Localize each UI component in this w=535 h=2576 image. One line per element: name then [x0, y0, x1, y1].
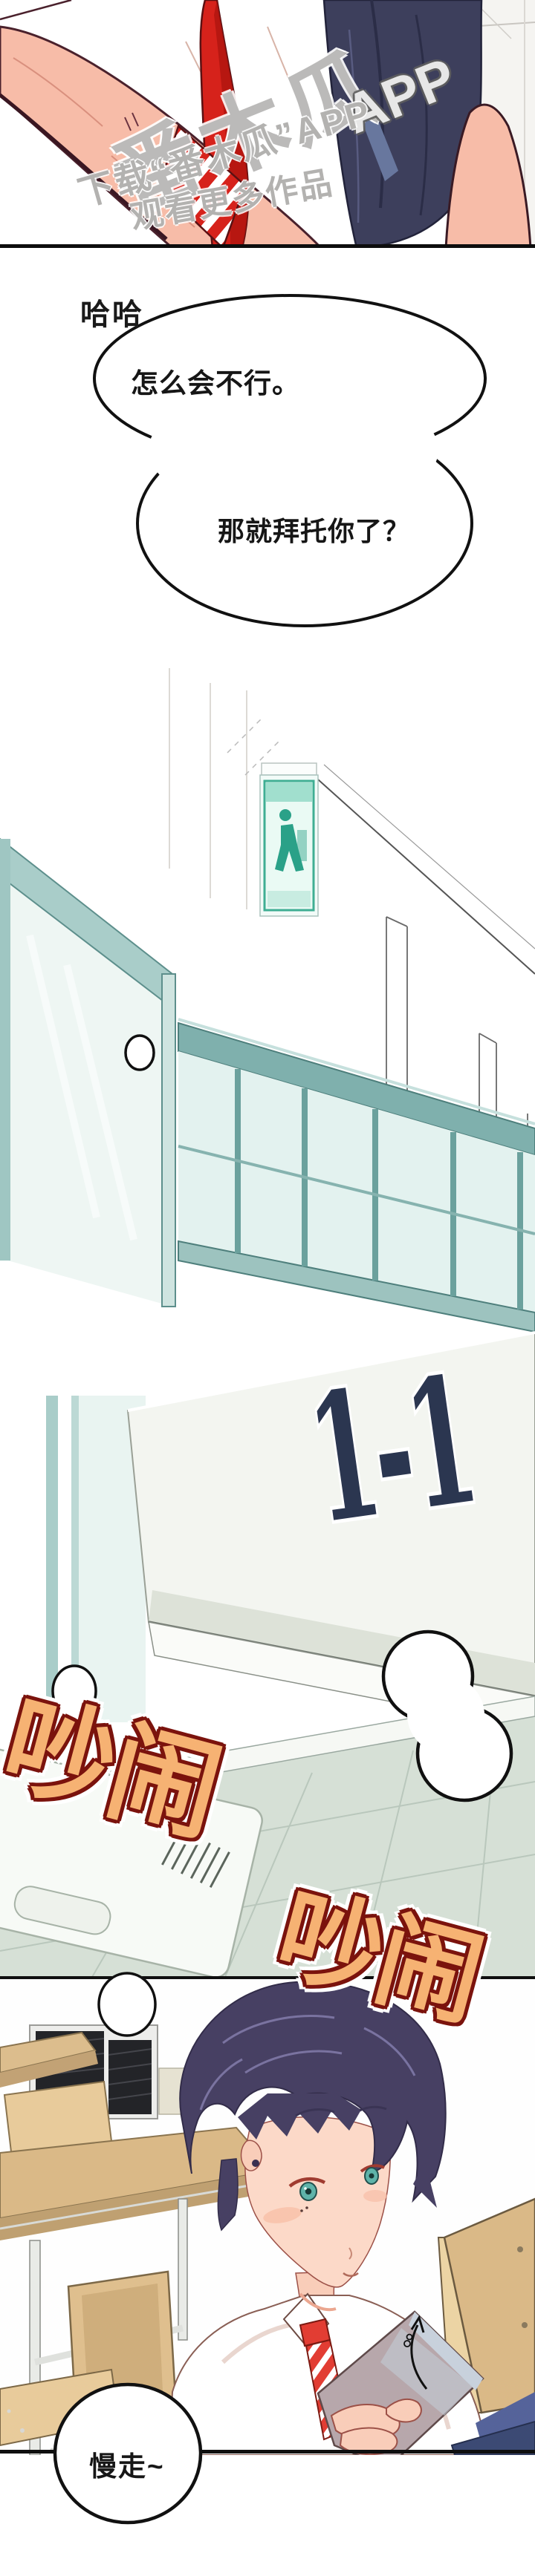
comic-page: { "page": {"width": 720, "height": 3470,… — [0, 0, 535, 2576]
speech-bubble-blob — [63, 281, 509, 637]
farewell-text: 慢走~ — [89, 2444, 165, 2484]
laugh-text: 哈哈 — [80, 290, 144, 333]
classroom-sign-text: 1-1 — [298, 1338, 484, 1563]
speech-bubble1-text: 怎么会不行。 — [131, 361, 300, 401]
thought-bubble-small-3 — [95, 1969, 162, 2039]
panel1-bottom-border — [0, 244, 535, 248]
exit-sign-icon — [260, 763, 318, 916]
thought-bubble-small-1 — [126, 1036, 154, 1070]
earring — [252, 2160, 259, 2167]
speech-bubble2-text: 那就拜托你了？ — [218, 510, 410, 549]
ear — [241, 2140, 262, 2171]
